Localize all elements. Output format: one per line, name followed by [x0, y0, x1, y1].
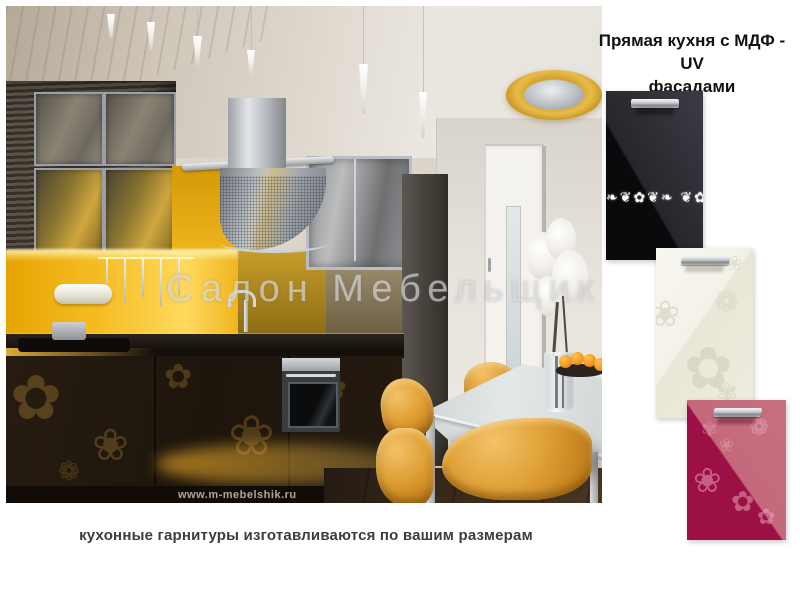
upper-glass-door: [104, 168, 176, 258]
range-hood-chimney: [228, 98, 286, 170]
chair-seat: [376, 428, 434, 503]
pendant-light: [106, 6, 116, 38]
oven-handle: [286, 374, 336, 377]
cabinet-seam: [154, 356, 156, 486]
pendant-light: [192, 6, 203, 66]
watermark: Салон Мебельщик: [166, 268, 666, 311]
orange-fruit: [594, 358, 602, 371]
hanging-utensil: [124, 259, 126, 303]
upper-glass-door: [34, 168, 104, 258]
oven-window: [288, 382, 338, 428]
handle-bar: [631, 99, 679, 108]
pendant-light: [246, 6, 256, 76]
floral-pattern: ❁: [714, 288, 739, 318]
sample-door-cream-floral: ✿ ❀ ❁ ✾ ❀: [656, 248, 753, 418]
handle-recess: [716, 417, 755, 424]
sample-door-magenta-floral: ❀ ✿ ❁ ✾ ✿ ❀: [687, 400, 786, 540]
white-scroll-ornament: ❧❦✿❦❧ ❦✿❦ ❧❦✿❦❧: [606, 189, 703, 206]
sample-handle: [631, 99, 679, 116]
floral-pattern: ❀: [719, 436, 734, 454]
pot: [52, 322, 86, 340]
sample-handle: [679, 256, 729, 273]
gold-floral-pattern: ✿: [10, 368, 62, 430]
title-line-1: Прямая кухня с МДФ - UV: [588, 30, 796, 76]
floral-pattern: ✿: [757, 506, 775, 528]
ceiling-light-dome: [524, 80, 584, 110]
stems-in-vase: [555, 356, 558, 408]
pendant-light: [146, 6, 156, 50]
pendant-light: [418, 6, 428, 138]
cooktop: [18, 338, 130, 352]
gold-floral-pattern: ❀: [92, 424, 129, 468]
footer-caption: кухонные гарнитуры изготавливаются по ва…: [6, 527, 606, 544]
handle-recess: [636, 108, 674, 115]
paper-towel-holder: [54, 284, 112, 304]
handle-recess: [684, 265, 723, 272]
hanging-utensil: [142, 259, 144, 297]
floral-pattern: ❀: [693, 464, 722, 498]
sample-handle: [711, 408, 761, 425]
upper-glass-door: [104, 92, 176, 166]
gold-floral-pattern: ❁: [58, 458, 80, 484]
page-title: Прямая кухня с МДФ - UV фасадами: [588, 30, 796, 99]
cabinet-divider: [354, 159, 356, 261]
orange-fruit: [571, 352, 584, 365]
hood-rim: [220, 234, 328, 253]
under-cabinet-light: [6, 249, 238, 261]
handle-bar: [712, 408, 761, 417]
oven-control-panel: [282, 358, 340, 371]
kitchen-photo: ✿ ❀ ✿ ❀ ✿ ❁: [6, 6, 602, 503]
hanging-utensil: [160, 259, 162, 307]
oven: [282, 358, 340, 432]
gold-floral-pattern: ✿: [164, 360, 193, 394]
floral-pattern: ✿: [731, 488, 754, 516]
sample-door-black-gloss: ❧❦✿❦❧ ❦✿❦ ❧❦✿❦❧: [606, 91, 703, 260]
upper-glass-door: [34, 92, 104, 166]
handle-bar: [680, 256, 729, 265]
pendant-light: [358, 6, 369, 114]
website-url: www.m-mebelshik.ru: [178, 489, 297, 501]
